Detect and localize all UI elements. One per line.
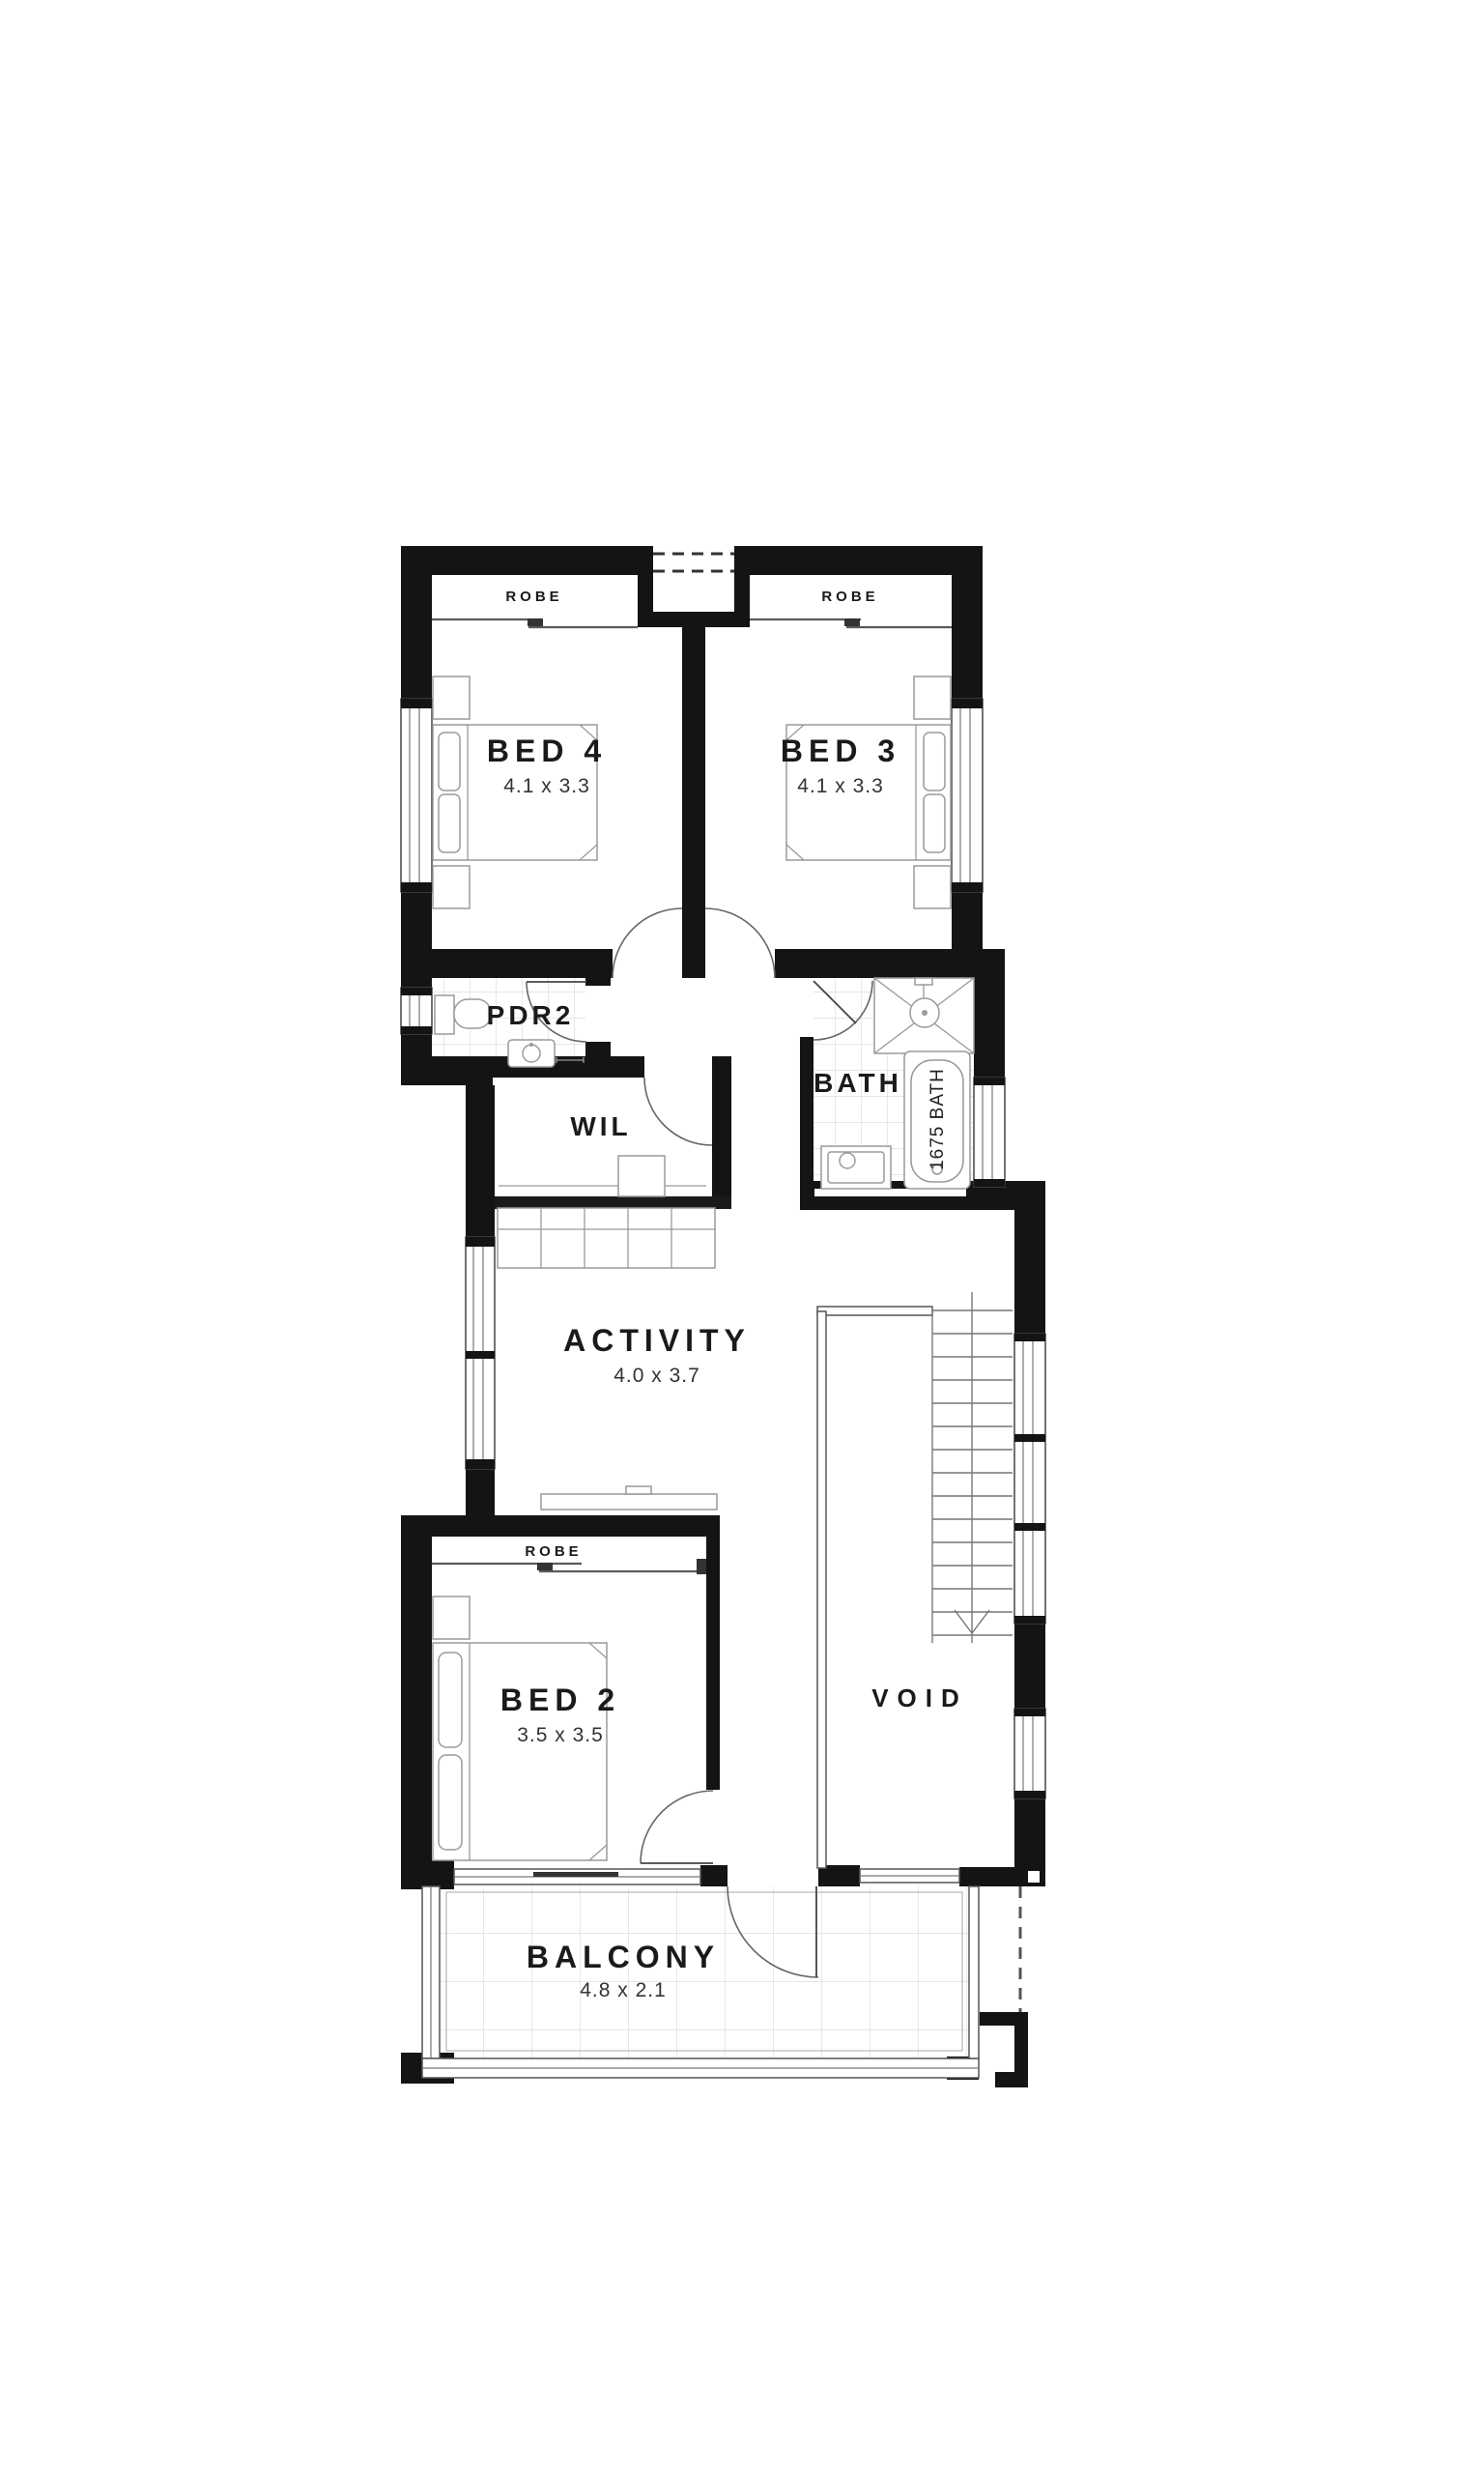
void-label: VOID xyxy=(871,1683,968,1712)
floor-plan-drawing: ROBE ROBE BED 4 4.1 x 3.3 BED 3 4.1 x 3.… xyxy=(0,0,1484,2474)
balcony-right-rail xyxy=(969,1886,979,2058)
bed3-door-arc xyxy=(705,908,775,978)
bed4-door-arc xyxy=(613,908,682,978)
wil-fittings xyxy=(499,1156,706,1196)
robe-left-label: ROBE xyxy=(505,589,562,605)
activity-cabinet xyxy=(498,1208,715,1268)
bath-label: BATH xyxy=(813,1068,902,1098)
bed4-pillow-2 xyxy=(439,794,460,852)
bath-vanity-basin xyxy=(840,1153,855,1168)
wil-shelf xyxy=(618,1156,665,1196)
bed2-door-arc xyxy=(641,1791,713,1863)
bath-window xyxy=(974,1078,1005,1187)
bed3-side-table-2 xyxy=(914,866,951,908)
void-window-upper xyxy=(1014,1334,1045,1624)
bed3-pillow-2 xyxy=(924,794,945,852)
niche-overhead xyxy=(653,554,734,571)
bed4-pillow-1 xyxy=(439,733,460,791)
bed2-pillow-2 xyxy=(439,1755,462,1850)
staircase xyxy=(932,1292,1013,1643)
pdr2-window xyxy=(401,988,432,1034)
activity-desk-detail xyxy=(626,1486,651,1494)
robe-right-overlap xyxy=(844,618,860,626)
balcony-label: BALCONY xyxy=(527,1940,720,1974)
bed3-window xyxy=(952,699,983,892)
bed2-label: BED 2 xyxy=(500,1683,620,1717)
void-window-lower xyxy=(1014,1709,1045,1798)
pdr2-basin xyxy=(523,1045,540,1062)
bed2-side-table xyxy=(433,1597,470,1639)
activity-desk xyxy=(541,1494,717,1510)
wil-label: WIL xyxy=(570,1111,631,1141)
pdr2-label: PDR2 xyxy=(487,1000,575,1030)
robe-bed2-overlap xyxy=(537,1563,553,1570)
activity-dims: 4.0 x 3.7 xyxy=(614,1365,700,1387)
bed3-dims: 4.1 x 3.3 xyxy=(797,775,884,797)
wil-south-wall xyxy=(495,1196,731,1209)
bath-wall-slot xyxy=(814,1189,966,1196)
bed4-window xyxy=(401,699,432,892)
robe-right-label: ROBE xyxy=(821,589,878,605)
bed2-sliding-door-panel xyxy=(533,1872,618,1877)
bed4-dims: 4.1 x 3.3 xyxy=(503,775,590,797)
robe-bed2-label: ROBE xyxy=(525,1543,582,1560)
shower-head xyxy=(915,978,932,985)
toilet-bowl xyxy=(454,999,491,1028)
balcony-dims: 4.8 x 2.1 xyxy=(580,1979,667,2001)
robe-left-overlap xyxy=(528,618,543,626)
robe-bed2-jamb xyxy=(697,1559,706,1574)
bed3-side-table-1 xyxy=(914,676,951,719)
bed4-label: BED 4 xyxy=(487,734,607,768)
bed3-label: BED 3 xyxy=(781,734,900,768)
bath-vanity-top xyxy=(828,1152,884,1183)
wil-door-arc xyxy=(644,1078,712,1145)
activity-label: ACTIVITY xyxy=(563,1323,751,1358)
toilet-cistern xyxy=(435,995,454,1034)
void-side-screen xyxy=(817,1311,826,1868)
bed3-pillow-1 xyxy=(924,733,945,791)
activity-window xyxy=(466,1237,495,1469)
floor-plan-page: ROBE ROBE BED 4 4.1 x 3.3 BED 3 4.1 x 3.… xyxy=(0,0,1484,2474)
bed2-dims: 3.5 x 3.5 xyxy=(517,1724,604,1746)
bathtub-size-label: 1675 BATH xyxy=(927,1068,948,1170)
balcony-block-notch xyxy=(1028,1871,1040,1883)
bed4-side-table-1 xyxy=(433,676,470,719)
pdr2-tap xyxy=(529,1043,533,1047)
activity-furniture xyxy=(498,1208,717,1510)
bed2-pillow-1 xyxy=(439,1653,462,1747)
void-top-edge xyxy=(817,1307,932,1315)
bed4-side-table-2 xyxy=(433,866,470,908)
